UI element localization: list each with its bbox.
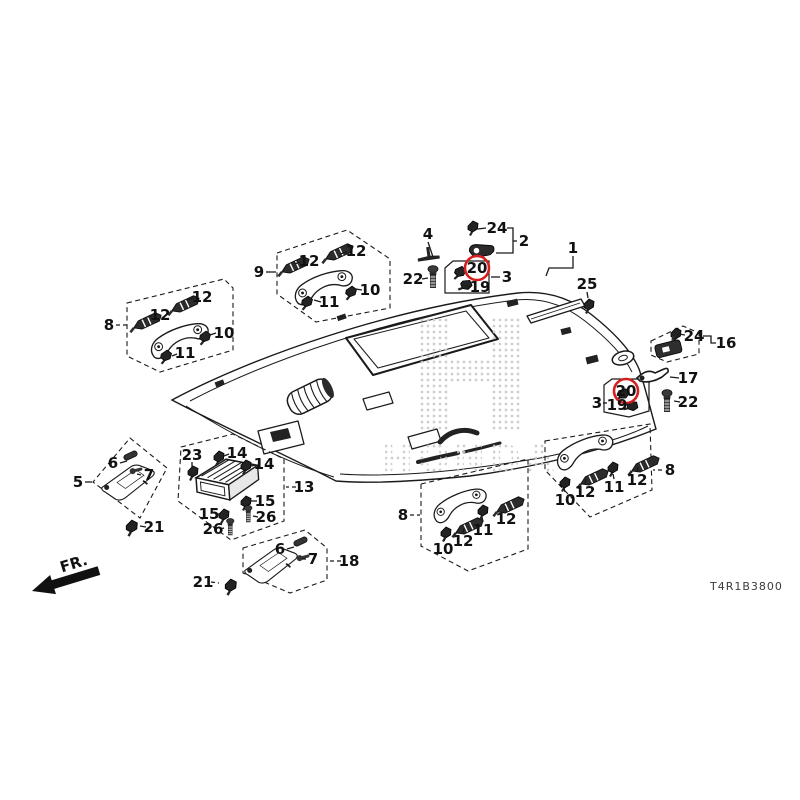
corrugated-duct xyxy=(284,375,337,417)
callout-label[interactable]: 9 xyxy=(254,263,264,281)
callout-label[interactable]: 12 xyxy=(346,242,367,260)
callout-label[interactable]: 3 xyxy=(502,268,512,286)
callout-label[interactable]: 24 xyxy=(684,327,705,345)
callout-2[interactable]: 2 xyxy=(513,232,529,250)
callout-label[interactable]: 2 xyxy=(519,232,529,250)
callout-10[interactable]: 10 xyxy=(356,281,380,299)
callout-label[interactable]: 12 xyxy=(575,483,596,501)
callout-label[interactable]: 22 xyxy=(403,270,424,288)
callout-label[interactable]: 16 xyxy=(716,334,737,352)
leader-line xyxy=(287,547,294,549)
callout-16[interactable]: 16 xyxy=(716,334,737,352)
callout-label[interactable]: 6 xyxy=(275,540,285,558)
callout-label[interactable]: 7 xyxy=(308,550,318,568)
bracket-16 xyxy=(653,334,683,358)
hook-17 xyxy=(637,368,668,381)
clip-4 xyxy=(416,246,440,262)
callout-label[interactable]: 10 xyxy=(360,281,381,299)
callout-12[interactable]: 12 xyxy=(147,306,170,324)
callout-12[interactable]: 12 xyxy=(453,528,474,550)
leader-line xyxy=(478,228,486,229)
callout-12[interactable]: 12 xyxy=(575,479,596,501)
callout-26[interactable]: 26 xyxy=(203,520,224,538)
parts-diagram: H HONDA xyxy=(0,0,800,800)
overhead-console-13 xyxy=(193,455,262,504)
callout-label[interactable]: 19 xyxy=(607,396,628,414)
callout-label[interactable]: 11 xyxy=(319,293,340,311)
callout-label[interactable]: 17 xyxy=(678,369,699,387)
callout-12[interactable]: 12 xyxy=(496,506,517,528)
honda-watermark: H HONDA xyxy=(382,286,559,481)
callout-11[interactable]: 11 xyxy=(604,474,625,496)
callout-label[interactable]: 18 xyxy=(339,552,360,570)
clip-24-top xyxy=(468,221,478,236)
leader-bracket xyxy=(703,336,716,343)
callout-17[interactable]: 17 xyxy=(670,369,698,387)
diagram-code: T4R1B3800 xyxy=(709,580,783,593)
screw-22-top xyxy=(428,266,438,288)
callout-12[interactable]: 12 xyxy=(627,467,648,489)
callout-10[interactable]: 10 xyxy=(555,488,576,509)
callout-11[interactable]: 11 xyxy=(172,344,195,362)
callout-label[interactable]: 24 xyxy=(487,219,508,237)
grab-handle xyxy=(553,428,616,472)
callout-12[interactable]: 12 xyxy=(294,252,319,270)
callout-12[interactable]: 12 xyxy=(187,288,212,306)
callout-label[interactable]: 12 xyxy=(299,252,320,270)
leader-line xyxy=(120,461,127,463)
callout-label[interactable]: 11 xyxy=(473,521,494,539)
callout-label[interactable]: 22 xyxy=(678,393,699,411)
callout-8[interactable]: 8 xyxy=(398,506,420,524)
molding-strip xyxy=(527,299,585,323)
callout-14[interactable]: 14 xyxy=(251,455,274,473)
callout-21[interactable]: 21 xyxy=(140,518,164,536)
callout-label[interactable]: 26 xyxy=(203,520,224,538)
clip-21 xyxy=(126,520,137,536)
callout-10[interactable]: 10 xyxy=(210,324,234,342)
callout-21[interactable]: 21 xyxy=(193,573,219,591)
watermark-text: HONDA xyxy=(382,437,559,481)
leader-bracket xyxy=(546,256,573,276)
callout-label[interactable]: 14 xyxy=(254,455,275,473)
callout-label[interactable]: 12 xyxy=(453,532,474,550)
callout-label[interactable]: 8 xyxy=(398,506,408,524)
callout-label[interactable]: 10 xyxy=(214,324,235,342)
clip-25 xyxy=(584,299,594,314)
callout-label[interactable]: 25 xyxy=(577,275,598,293)
callout-label[interactable]: 4 xyxy=(423,225,433,243)
clip-11 xyxy=(478,505,488,520)
callout-8[interactable]: 8 xyxy=(104,316,127,334)
grommet-oval xyxy=(611,349,636,368)
pin-6 xyxy=(123,450,138,461)
callout-label[interactable]: 26 xyxy=(256,508,277,526)
callout-9[interactable]: 9 xyxy=(254,263,276,281)
screw-26 xyxy=(245,505,253,522)
callout-3[interactable]: 3 xyxy=(491,268,512,286)
callout-label[interactable]: 5 xyxy=(73,473,83,491)
callout-label[interactable]: 10 xyxy=(433,540,454,558)
callout-label[interactable]: 11 xyxy=(175,344,196,362)
callout-label[interactable]: 20 xyxy=(467,259,488,277)
callout-19[interactable]: 19 xyxy=(607,396,630,414)
callout-26[interactable]: 26 xyxy=(253,508,276,526)
callout-label[interactable]: 11 xyxy=(604,478,625,496)
screw-22-right xyxy=(662,390,672,412)
callout-7[interactable]: 7 xyxy=(302,550,318,568)
callout-13[interactable]: 13 xyxy=(286,478,314,496)
callout-5[interactable]: 5 xyxy=(73,473,92,491)
callout-label[interactable]: 12 xyxy=(150,306,171,324)
callout-19[interactable]: 19 xyxy=(466,278,490,296)
clip-21 xyxy=(225,579,236,595)
callout-11[interactable]: 11 xyxy=(314,293,339,311)
callout-label[interactable]: 1 xyxy=(568,239,578,257)
callout-label[interactable]: 21 xyxy=(144,518,165,536)
callout-label[interactable]: 14 xyxy=(227,444,248,462)
callout-label[interactable]: 3 xyxy=(592,394,602,412)
callout-3[interactable]: 3 xyxy=(592,394,607,412)
callout-label[interactable]: 19 xyxy=(470,278,491,296)
callout-label[interactable]: 10 xyxy=(555,491,576,509)
callout-25[interactable]: 25 xyxy=(577,275,598,298)
fr-direction: FR. xyxy=(25,549,102,601)
callout-18[interactable]: 18 xyxy=(329,552,359,570)
callout-label[interactable]: 8 xyxy=(104,316,114,334)
screw-26 xyxy=(227,518,235,535)
callout-label[interactable]: 13 xyxy=(294,478,315,496)
callout-label[interactable]: 6 xyxy=(108,454,118,472)
callout-1[interactable]: 1 xyxy=(546,239,578,276)
callout-label[interactable]: 23 xyxy=(182,446,203,464)
vent-cutout xyxy=(363,392,393,410)
pin-6 xyxy=(293,536,308,547)
callout-14[interactable]: 14 xyxy=(224,444,247,462)
callout-23[interactable]: 23 xyxy=(182,446,203,467)
clip-10 xyxy=(345,285,357,301)
callout-label[interactable]: 7 xyxy=(144,466,154,484)
callout-24[interactable]: 24 xyxy=(679,327,716,345)
callout-10[interactable]: 10 xyxy=(433,536,454,558)
callout-11[interactable]: 11 xyxy=(473,517,494,539)
callout-label[interactable]: 12 xyxy=(192,288,213,306)
callout-label[interactable]: 12 xyxy=(496,510,517,528)
callout-label[interactable]: 12 xyxy=(627,471,648,489)
callout-label[interactable]: 8 xyxy=(665,461,675,479)
callout-20[interactable]: 20 xyxy=(465,256,489,280)
sunvisor-18 xyxy=(241,544,301,587)
callout-label[interactable]: 21 xyxy=(193,573,214,591)
callout-22[interactable]: 22 xyxy=(674,393,698,411)
